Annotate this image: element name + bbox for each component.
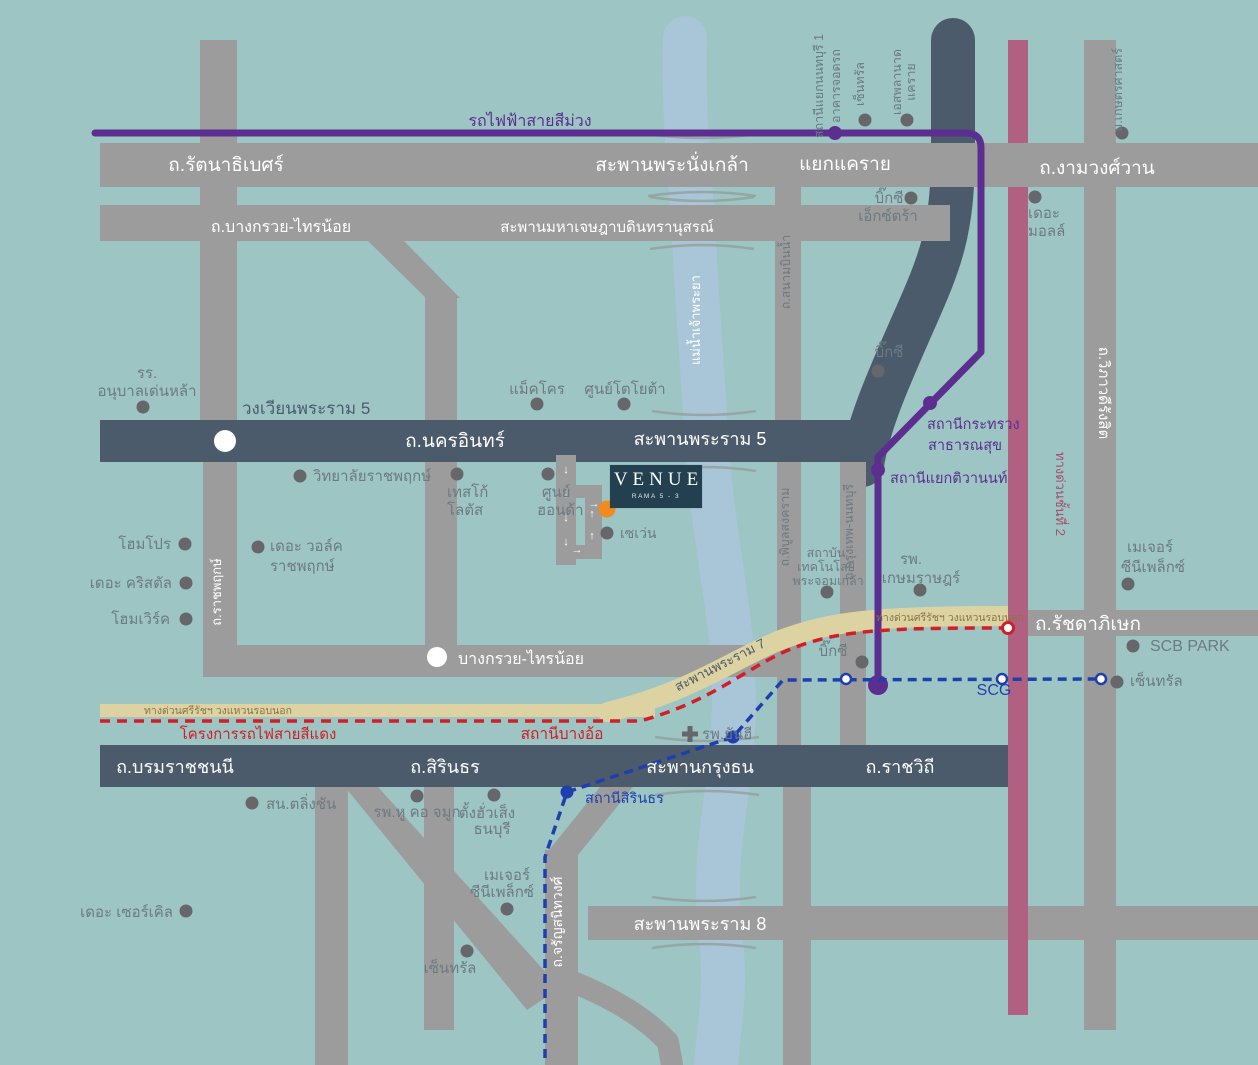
- landmark-denla-school-2: อนุบาลเด่นหล้า: [97, 383, 196, 401]
- blue-line-ring-0: [841, 674, 851, 684]
- landmark-major-pinklao-1: เมเจอร์: [484, 867, 530, 884]
- landmark-dot-15: [180, 577, 193, 590]
- landmark-the-walk-1: เดอะ วอล์ค: [270, 538, 343, 555]
- purple-station-1: [923, 396, 937, 410]
- landmark-tang-hua-seng-1: ตั้งฮั่วเส็ง: [459, 802, 515, 822]
- landmark-honda-center-1: ศูนย์: [542, 484, 571, 501]
- road-ratchadaphisek-label: ถ.รัชดาภิเษก: [1035, 614, 1141, 635]
- landmark-bigc-tiwanon: บิ๊กซี: [875, 341, 904, 361]
- road-ratchaphruek-label: ถ.ราชพฤกษ์: [209, 558, 224, 626]
- landmark-kmit-1: สถาบัน: [807, 546, 846, 560]
- bridge-krungthon: สะพานกรุงธน: [646, 757, 754, 778]
- landmark-homework: โฮมเวิร์ค: [111, 610, 170, 628]
- landmark-dot-12: [601, 527, 614, 540]
- landmark-major-pinklao-2: ซีนีเพล็กซ์: [470, 882, 534, 901]
- landmark-major-ratchayothin-2: ซีนีเพล็กซ์: [1121, 557, 1185, 576]
- road-nakhon-in-label: ถ.นครอินทร์: [405, 430, 505, 452]
- landmark-seven-eleven: เซเว่น: [620, 525, 657, 541]
- road-bangkruai-sainoi-south-label: บางกรวย-ไทรน้อย: [458, 649, 584, 668]
- landmark-dot-9: [294, 470, 307, 483]
- purple-station-2: [871, 463, 885, 477]
- map-canvas: ↓↓↓↓↑↑→→ถ.รัตนาธิเบศร์สะพานพระนั่งเกล้าแ…: [0, 0, 1258, 1065]
- junction-rama5-roundabout-label: วงเวียนพระราม 5: [242, 399, 370, 418]
- expressway-sirat-label-east: ทางด่วนศรีรัชฯ วงแหวนรอบนอก: [876, 611, 1024, 624]
- junction-khae-rai: แยกแคราย: [799, 154, 891, 175]
- landmark-central-pinklao: เซ็นทรัล: [424, 958, 477, 977]
- landmark-dot-26: [501, 903, 514, 916]
- landmark-kasetsart-university: ม.เกษตรศาสตร์: [1111, 48, 1125, 132]
- landmark-makro: แม็คโคร: [509, 379, 565, 398]
- road-bangkruai-sainoi-label: ถ.บางกรวย-ไทรน้อย: [211, 217, 351, 236]
- expressway-sirat-label-west: ทางด่วนศรีรัชฯ วงแหวนรอบนอก: [144, 704, 292, 717]
- landmark-scg: SCG: [977, 682, 1012, 699]
- landmark-ratchaphruek-college: วิทยาลัยราชพฤกษ์: [312, 468, 431, 485]
- landmark-bigc-extra-1: บิ๊กซี: [875, 187, 904, 207]
- red-line-ring-0: [1003, 623, 1014, 634]
- road-sanambinnam-label: ถ.สนามบินน้ำ: [776, 235, 793, 310]
- bridge-rama8: สะพานพระราม 8: [634, 914, 767, 934]
- landmark-dot-19: [1127, 640, 1140, 653]
- station-bang-o: สถานีบางอ้อ: [521, 726, 604, 743]
- landmark-bigc-wongsawang: บิ๊กซี: [819, 640, 848, 660]
- road-borommaratchachonnani-label: ถ.บรมราชชนนี: [116, 757, 234, 777]
- bridge-rama5: สะพานพระราม 5: [634, 429, 767, 449]
- venue-project-name: VENUE: [610, 468, 702, 492]
- purple-station-0: [828, 126, 842, 140]
- river-chao-phraya-label: แม่น้ำเจ้าพระยา: [686, 275, 703, 365]
- landmark-honda-center-2: ฮอนด้า: [537, 502, 584, 519]
- landmark-tang-hua-seng-2: ธนบุรี: [474, 821, 511, 839]
- landmark-dot-23: [246, 797, 259, 810]
- landmark-dot-1: [1029, 191, 1042, 204]
- road-charansanitwong-label: ถ.จรัญสนิทวงศ์: [549, 876, 565, 967]
- landmark-dot-0: [905, 192, 918, 205]
- blue-line-station-0: [561, 786, 574, 799]
- landmark-kasemrad-2: เกษมราษฎร์: [882, 570, 960, 587]
- arrow-up-icon-1: ↑: [589, 530, 595, 542]
- landmark-major-ratchayothin-1: เมเจอร์: [1127, 539, 1173, 556]
- red-line-project-label: โครงการรถไฟสายสีแดง: [180, 725, 337, 743]
- station-ministry-of-health-1: สถานีกระทรวง: [927, 416, 1020, 433]
- station-ministry-of-health-2: สาธารณสุข: [928, 438, 1002, 454]
- landmark-tesco-lotus-2: โลตัส: [447, 501, 483, 519]
- landmark-scb-park: SCB PARK: [1150, 638, 1230, 655]
- arrow-down-icon-0: ↓: [563, 464, 569, 476]
- road-sirindhorn: ถ.สิรินธร: [410, 757, 480, 777]
- landmark-central-khaerai: เซ็นทรัล: [852, 62, 867, 106]
- landmark-the-mall-1: เดอะ: [1028, 205, 1060, 222]
- road-bottomleft-v1: [315, 787, 348, 1065]
- landmark-the-crystal: เดอะ คริสตัล: [90, 575, 172, 592]
- arrow-down-icon-3: ↓: [563, 536, 569, 548]
- landmark-dot-21: [856, 656, 869, 669]
- station-yaek-nonthaburi-1: สถานีแยกนนทบุรี 1: [812, 34, 827, 138]
- landmark-homepro: โฮมโปร: [118, 535, 171, 553]
- landmark-dot-8: [618, 398, 631, 411]
- landmark-dot-25: [488, 789, 501, 802]
- landmark-talingchan-police: สน.ตลิ่งชัน: [266, 793, 336, 813]
- blue-line-ring-2: [1096, 674, 1106, 684]
- landmark-dot-5: [872, 365, 885, 378]
- landmark-kasemrad-1: รพ.: [900, 551, 922, 568]
- landmark-parking-building: อาคารจอดรถ: [829, 49, 843, 123]
- landmark-dot-28: [461, 945, 474, 958]
- station-yaek-tiwanon: สถานีแยกติวานนท์: [890, 470, 1007, 487]
- arrow-right-icon-0: →: [589, 498, 600, 510]
- landmark-kmit-3: พระจอมเกล้า: [792, 574, 863, 588]
- landmark-dot-3: [859, 114, 872, 127]
- bridge-phra-nangklao: สะพานพระนั่งเกล้า: [595, 151, 749, 176]
- landmark-dot-7: [531, 398, 544, 411]
- landmark-bigc-extra-2: เอ็กซ์ตร้า: [858, 206, 918, 225]
- landmark-dot-16: [180, 613, 193, 626]
- landmark-the-walk-2: ราชพฤกษ์: [270, 558, 335, 575]
- landmark-dot-20: [1111, 676, 1124, 689]
- landmark-esplanade-2: แคราย: [904, 63, 918, 100]
- roundabout-0: [214, 430, 236, 452]
- landmark-esplanade-1: เอสพลานาด: [890, 49, 904, 115]
- landmark-dot-22: [1122, 578, 1135, 591]
- landmark-dot-13: [252, 541, 265, 554]
- landmark-the-mall-2: มอลล์: [1028, 223, 1065, 240]
- road-bottomright-vertical: [783, 787, 811, 1065]
- bridge-maha-chesadabodin: สะพานมหาเจษฎาบดินทรานุสรณ์: [500, 219, 714, 237]
- landmark-central-rattanathibet: เซ็นทรัล: [1130, 671, 1183, 690]
- landmark-ent-hospital: รพ.หู คอ จมูก: [373, 804, 460, 821]
- purple-line-label: รถไฟฟ้าสายสีม่วง: [468, 111, 591, 130]
- landmark-dot-14: [179, 538, 192, 551]
- landmark-toyota-center: ศูนย์โตโยต้า: [584, 380, 665, 398]
- venue-project-subtitle: RAMA 5 - 3: [610, 493, 702, 500]
- arrow-right-icon-1: →: [572, 544, 583, 556]
- roundabout-1: [427, 647, 447, 667]
- landmark-denla-school-1: รร.: [137, 365, 157, 382]
- road-rattanathibet: ถ.รัตนาธิเบศร์: [168, 154, 283, 176]
- landmark-tesco-lotus-1: เทสโก้: [447, 483, 488, 501]
- location-map: ↓↓↓↓↑↑→→ถ.รัตนาธิเบศร์สะพานพระนั่งเกล้าแ…: [0, 0, 1258, 1065]
- station-sirindhorn: สถานีสิรินธร: [585, 790, 664, 807]
- landmark-the-circle: เดอะ เซอร์เคิล: [80, 904, 173, 921]
- venue-project-logo: VENUE RAMA 5 - 3: [610, 465, 702, 508]
- road-phibunsongkhram-label: ถ.พิบูลสงคราม: [778, 488, 793, 567]
- landmark-dot-6: [137, 401, 150, 414]
- road-vibhavadi: [1084, 40, 1116, 1030]
- road-vibhavadi-label: ถ.วิภาวดีรังสิต: [1095, 347, 1112, 439]
- landmark-dot-10: [451, 468, 464, 481]
- landmark-yanhee-hospital: รพ.ยันฮี: [702, 726, 752, 743]
- road-ratchawithi: ถ.ราชวิถี: [866, 757, 935, 777]
- landmark-kmit-2: เทคโนโลยี: [797, 559, 855, 574]
- landmark-dot-11: [542, 468, 555, 481]
- expressway-stage2-label: ทางด่วนชั้นที่ 2: [1053, 452, 1070, 536]
- road-ngamwongwan: ถ.งามวงศ์วาน: [1039, 157, 1155, 179]
- landmark-dot-27: [180, 905, 193, 918]
- landmark-dot-24: [411, 790, 424, 803]
